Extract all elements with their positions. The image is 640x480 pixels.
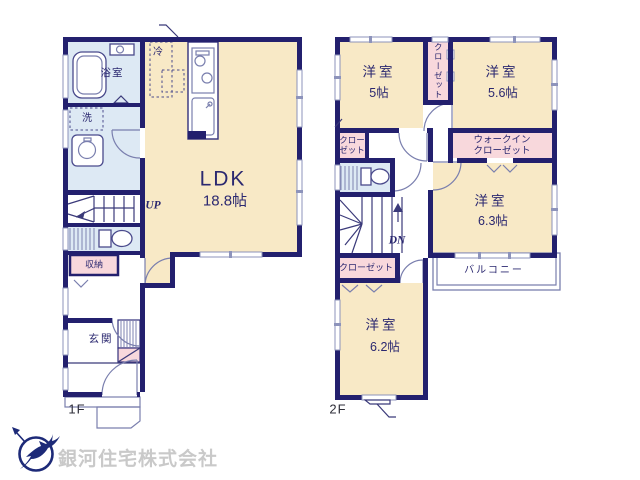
vanity-icon xyxy=(72,135,103,166)
closet-small-label-line1: クロー xyxy=(339,136,365,145)
closet-vertical-label: クローゼット xyxy=(434,43,443,100)
kitchen-counter xyxy=(188,42,218,139)
entrance-step xyxy=(97,407,140,428)
floor-plan-canvas: 浴室 洗 冷 LDK 18.8帖 UP 収納 玄関 1F 洋室 5帖 洋室 5.… xyxy=(0,0,640,480)
bedroom4-size-label: 6.2帖 xyxy=(370,341,400,354)
ldk-size-label: 18.8帖 xyxy=(203,194,247,209)
ldk-room xyxy=(145,42,297,283)
bedroom3-size-label: 6.3帖 xyxy=(478,215,508,228)
bedroom1-size-label: 5帖 xyxy=(369,87,388,100)
toilet-icon-2f xyxy=(361,168,389,185)
toilet-icon-1f xyxy=(99,230,132,247)
bathroom-label: 浴室 xyxy=(101,68,124,79)
floor-plan-drawing xyxy=(0,0,640,480)
closet-bottom-label: クローゼット xyxy=(339,264,393,273)
bedroom2-label: 洋室 xyxy=(486,65,519,79)
walkin-closet-label-line2: クローゼット xyxy=(473,146,530,156)
closet-small-label-line2: ゼット xyxy=(339,146,365,155)
bedroom1-label: 洋室 xyxy=(363,65,396,79)
storage-door-mark xyxy=(74,280,88,287)
company-watermark: 銀河住宅株式会社 xyxy=(58,444,218,471)
stairs-up-label: UP xyxy=(145,200,160,212)
shoe-cabinet xyxy=(118,320,140,362)
floor2-label: 2F xyxy=(329,403,346,416)
stairs-down-label: DN xyxy=(389,235,406,247)
bath-sink-icon xyxy=(110,44,134,55)
company-logo xyxy=(12,427,60,471)
balcony-label: バルコニー xyxy=(464,266,524,276)
storage-label: 収納 xyxy=(85,261,103,270)
laundry-label: 洗 xyxy=(82,114,92,124)
compass-arrow-icon xyxy=(12,427,20,435)
fridge-label: 冷 xyxy=(153,48,163,58)
stairs-1f xyxy=(68,196,134,222)
toilet-window-stripes-1f xyxy=(70,228,94,250)
floor-2-plan xyxy=(334,36,560,417)
walkin-closet-label-line1: ウォークイン xyxy=(473,135,530,145)
floor1-label: 1F xyxy=(68,403,85,416)
vent-flue-mark-1f xyxy=(159,25,178,37)
compass-needle-icon xyxy=(16,432,25,442)
bedroom2-size-label: 5.6帖 xyxy=(488,87,518,100)
bedroom3-label: 洋室 xyxy=(475,194,508,208)
floor-1-plan xyxy=(63,25,303,428)
entrance-label: 玄関 xyxy=(89,334,114,345)
ldk-label: LDK xyxy=(200,169,247,190)
bedroom4-label: 洋室 xyxy=(366,318,399,332)
